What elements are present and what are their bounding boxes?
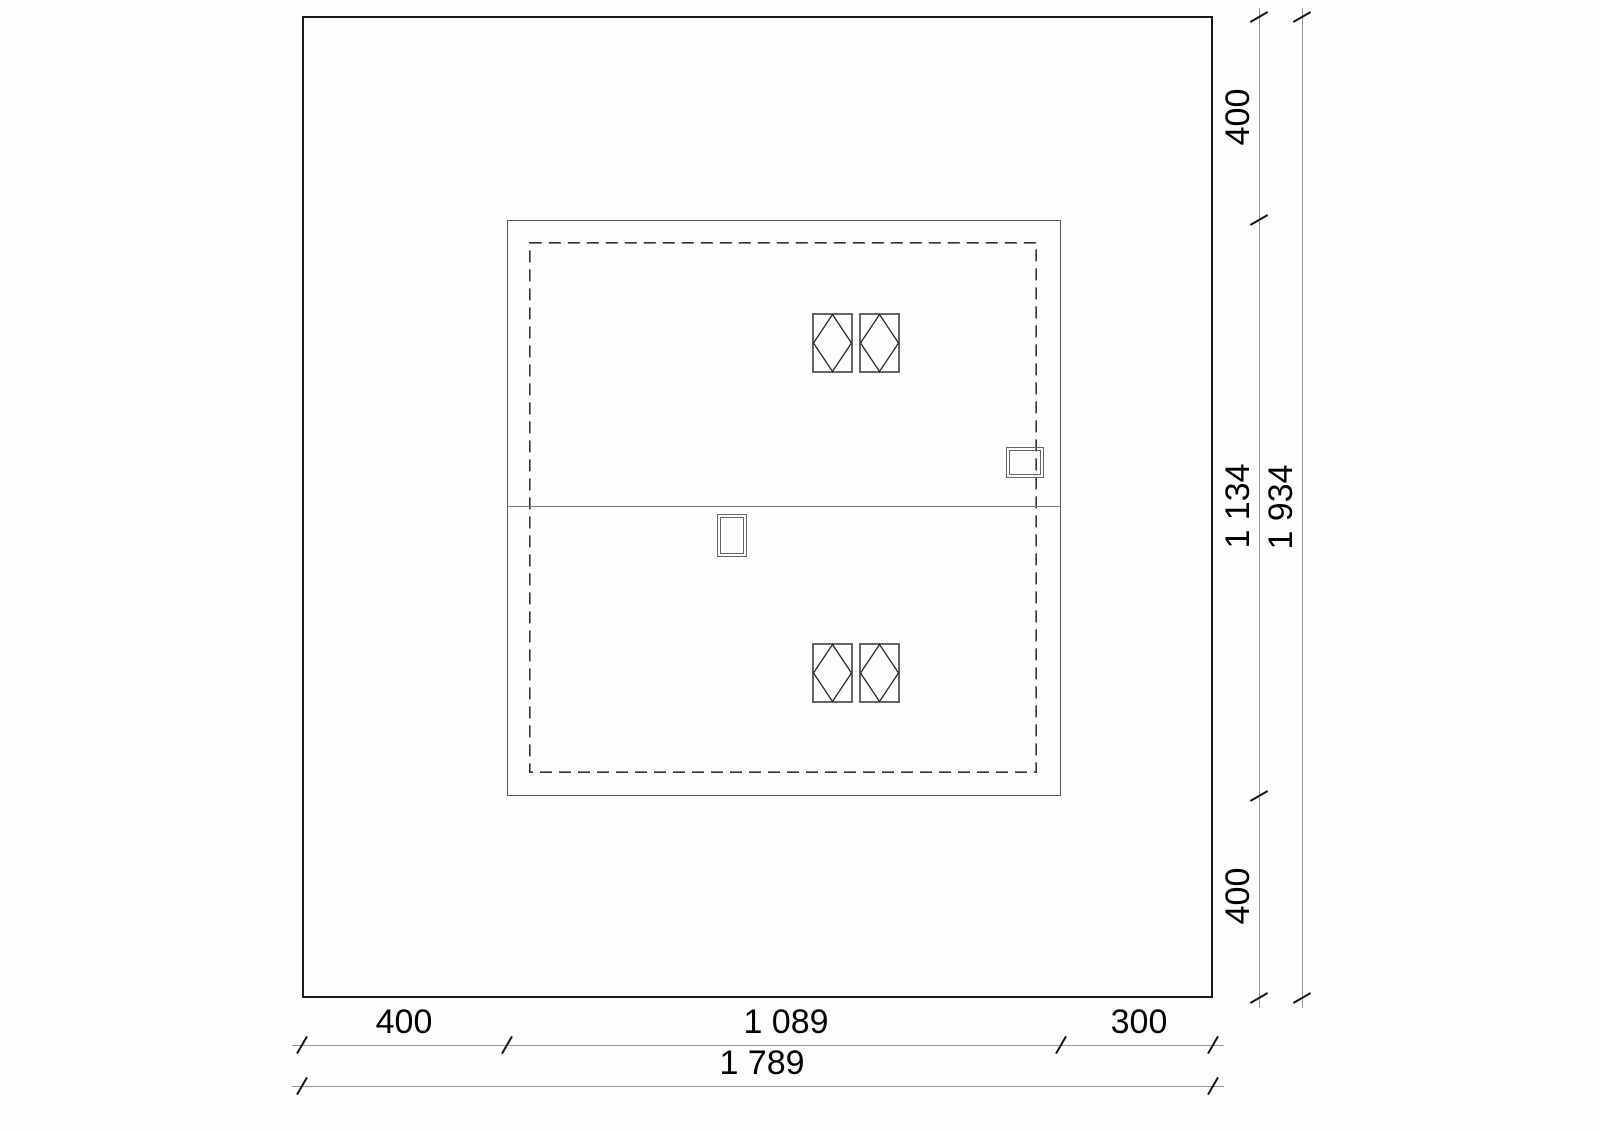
dim-label-bottom-total: 1 789 bbox=[719, 1045, 804, 1081]
window-frame bbox=[813, 644, 852, 702]
window-diamond bbox=[861, 315, 899, 372]
dim-label-bottom-400: 400 bbox=[376, 1004, 433, 1040]
dim-label-right-400-top: 400 bbox=[1220, 89, 1256, 146]
window-diamond bbox=[861, 645, 899, 702]
stack-center bbox=[717, 514, 747, 557]
roof-window-bottom-left bbox=[812, 643, 853, 703]
dim-line-right-segments bbox=[1259, 8, 1260, 1008]
stack-center-inner bbox=[720, 517, 744, 554]
dim-label-bottom-300: 300 bbox=[1111, 1004, 1168, 1040]
roof-window-top-right bbox=[859, 313, 900, 373]
window-diamond bbox=[814, 645, 852, 702]
dim-label-bottom-1089: 1 089 bbox=[743, 1004, 828, 1040]
roof-window-top-left bbox=[812, 313, 853, 373]
roof-window-bottom-right bbox=[859, 643, 900, 703]
dim-label-right-400-bottom: 400 bbox=[1220, 868, 1256, 925]
roof-plan-canvas: 400 1 089 300 1 789 400 1 134 400 1 934 bbox=[0, 0, 1600, 1131]
window-diamond bbox=[814, 315, 852, 372]
roof-overhang-dashed-outline bbox=[529, 242, 1037, 773]
window-frame bbox=[860, 314, 899, 372]
ridge-line bbox=[507, 506, 1061, 507]
window-frame bbox=[860, 644, 899, 702]
chimney-right bbox=[1006, 447, 1044, 478]
dim-line-bottom-total bbox=[292, 1086, 1224, 1087]
dim-line-right-total bbox=[1302, 8, 1303, 1008]
dim-label-right-1134: 1 134 bbox=[1220, 463, 1256, 548]
window-frame bbox=[813, 314, 852, 372]
dim-label-right-total: 1 934 bbox=[1263, 464, 1299, 549]
dashed-rect bbox=[530, 243, 1036, 772]
chimney-right-inner bbox=[1009, 450, 1041, 475]
